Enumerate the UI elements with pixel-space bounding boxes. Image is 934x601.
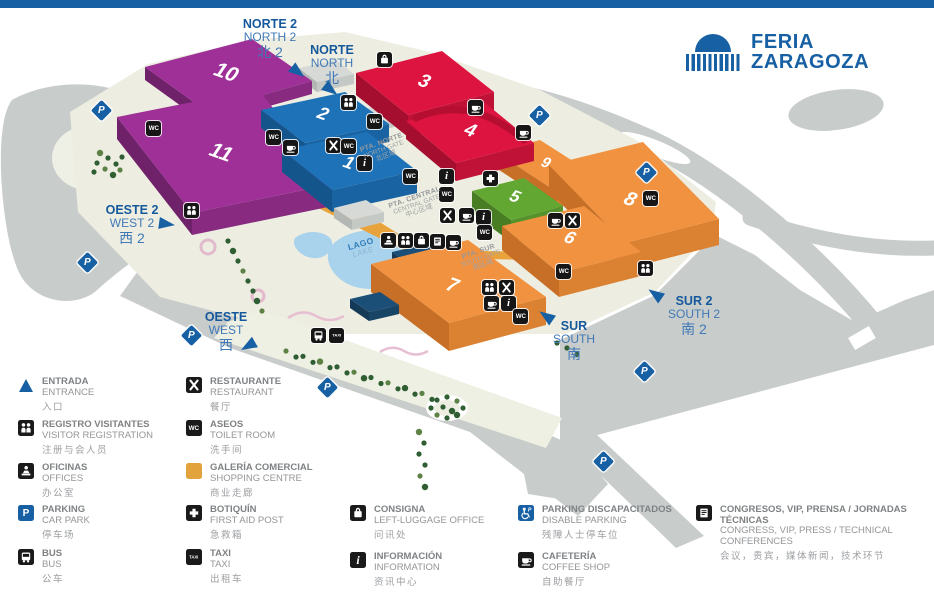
cong-icon <box>696 505 712 521</box>
legend-item-dis: PPARKING DISCAPACITADOSDISABLE PARKING残障… <box>518 505 717 541</box>
rest-icon <box>440 208 455 223</box>
direction-norte: NORTENORTH北 <box>310 44 354 87</box>
tree <box>419 391 424 396</box>
rest-icon <box>565 213 580 228</box>
logo-line2: ZARAGOZA <box>751 52 869 72</box>
legend-zh: 问讯处 <box>374 530 534 541</box>
legend-es: PARKING <box>42 505 172 516</box>
direction-zh: 西 2 <box>106 230 159 247</box>
legend-zh: 办公室 <box>42 488 172 499</box>
dome-shape <box>695 34 731 52</box>
legend-es: INFORMACIÓN <box>374 552 534 563</box>
legend-text: BUSBUS公车 <box>42 549 172 585</box>
legend-es: TAXI <box>210 549 350 560</box>
legend-en: CAR PARK <box>42 516 172 527</box>
info-icon: i <box>350 552 366 568</box>
legend-es: CONGRESOS, VIP, PRENSA / JORNADAS TÉCNIC… <box>720 505 930 526</box>
tree <box>444 415 449 420</box>
legend-text: REGISTRO VISITANTESVISITOR REGISTRATION注… <box>42 420 172 456</box>
tree <box>454 398 459 403</box>
legend-en: LEFT-LUGGAGE OFFICE <box>374 516 534 527</box>
logo: FERIA ZARAGOZA <box>686 32 869 72</box>
direction-en: NORTH 2 <box>243 31 297 44</box>
info-icon: i <box>439 169 454 184</box>
road-blob-topright <box>786 84 887 137</box>
legend-es: BOTIQUÍN <box>210 505 350 516</box>
tree <box>225 238 230 243</box>
legend-zh: 洗手间 <box>210 445 350 456</box>
tree <box>351 370 356 375</box>
legend-text: TAXITAXI出租车 <box>210 549 350 585</box>
taxi-icon: TAXI <box>186 549 202 565</box>
tree <box>105 155 110 160</box>
ofi-icon <box>18 463 34 479</box>
reg-icon <box>184 203 199 218</box>
tree <box>422 484 428 490</box>
legend-text: ASEOSTOILET ROOM洗手间 <box>210 420 350 456</box>
tree <box>327 365 332 370</box>
direction-norte2: NORTE 2NORTH 2北 2 <box>243 18 297 61</box>
legend-zh: 入口 <box>42 402 172 413</box>
wc-icon: WC <box>513 309 528 324</box>
legend-en: TOILET ROOM <box>210 431 350 442</box>
legend-text: ENTRADAENTRANCE入口 <box>42 377 172 413</box>
tree <box>235 258 240 263</box>
legend-item-reg: REGISTRO VISITANTESVISITOR REGISTRATION注… <box>18 420 172 456</box>
direction-en: WEST <box>205 324 247 337</box>
tree <box>254 298 260 304</box>
direction-zh: 南 <box>553 346 595 363</box>
coffee-icon <box>446 235 461 250</box>
tree <box>385 380 390 385</box>
ofi-icon <box>381 233 396 248</box>
bus-icon <box>18 549 34 565</box>
legend-zh: 商业走廊 <box>210 488 350 499</box>
tree <box>429 397 434 402</box>
legend-text: GALERÍA COMERCIALSHOPPING CENTRE商业走廊 <box>210 463 350 499</box>
legend-item-info: iINFORMACIÓNINFORMATION资讯中心 <box>350 552 534 588</box>
legend-zh: 残障人士停车位 <box>542 530 717 541</box>
reg-icon <box>482 280 497 295</box>
legend-en: CONGRESS, VIP, PRESS / TECHNICAL CONFERE… <box>720 526 930 547</box>
legend-item-taxi: TAXITAXITAXI出租车 <box>186 549 350 585</box>
legend-es: BUS <box>42 549 172 560</box>
tree <box>317 358 323 364</box>
legend-zh: 餐厅 <box>210 402 350 413</box>
direction-oeste2: OESTE 2WEST 2西 2 <box>106 204 159 247</box>
tree <box>94 160 99 165</box>
legend-item-aid: BOTIQUÍNFIRST AID POST急救箱 <box>186 505 350 541</box>
legend-item-coffee: CAFETERÍACOFFEE SHOP自助餐厅 <box>518 552 717 588</box>
legend-en: RESTAURANT <box>210 388 350 399</box>
legend-zh: 急救箱 <box>210 530 350 541</box>
wc-icon: WC <box>186 420 202 436</box>
wc-icon: WC <box>266 130 281 145</box>
info-icon: i <box>476 210 491 225</box>
wc-icon: WC <box>403 169 418 184</box>
legend-text: PARKING DISCAPACITADOSDISABLE PARKING残障人… <box>542 505 717 541</box>
legend-es: OFICINAS <box>42 463 172 474</box>
direction-en: NORTH <box>310 57 354 70</box>
legend-text: BOTIQUÍNFIRST AID POST急救箱 <box>210 505 350 541</box>
reg-icon <box>398 233 413 248</box>
legend-item-shop: GALERÍA COMERCIALSHOPPING CENTRE商业走廊 <box>186 463 350 499</box>
bag-icon <box>350 505 366 521</box>
direction-en: SOUTH 2 <box>668 308 720 321</box>
tree <box>402 385 408 391</box>
tree <box>460 405 465 410</box>
tree <box>91 169 96 174</box>
parking-letter: P <box>98 105 105 116</box>
tree <box>422 462 427 467</box>
legend-text: CONSIGNALEFT-LUGGAGE OFFICE问讯处 <box>374 505 534 541</box>
legend-zh: 注册与会人员 <box>42 445 172 456</box>
tree <box>310 360 315 365</box>
legend-item-bus: BUSBUS公车 <box>18 549 172 585</box>
tree <box>440 404 445 409</box>
tree <box>250 288 255 293</box>
rest-icon <box>326 138 341 153</box>
cong-icon <box>430 234 445 249</box>
legend-item-cong: CONGRESOS, VIP, PRENSA / JORNADAS TÉCNIC… <box>696 505 930 562</box>
tree <box>102 166 107 171</box>
tree <box>119 154 124 159</box>
tree <box>110 172 116 178</box>
legend-item-wc: WCASEOSTOILET ROOM洗手间 <box>186 420 350 456</box>
wc-icon: WC <box>341 139 356 154</box>
legend-es: PARKING DISCAPACITADOS <box>542 505 717 516</box>
aid-icon <box>483 171 498 186</box>
coffee-icon <box>459 208 474 223</box>
reg-icon <box>18 420 34 436</box>
legend-en: OFFICES <box>42 474 172 485</box>
feria-zaragoza-venue-map: 1011213948567WCWCWCWCiWCiWCiWCiWCWCWCTAX… <box>0 0 934 601</box>
dis-icon: P <box>518 505 534 521</box>
legend-zh: 资讯中心 <box>374 577 534 588</box>
coffee-icon <box>283 140 298 155</box>
reg-icon <box>638 261 653 276</box>
tree <box>434 397 439 402</box>
tree <box>293 354 298 359</box>
shop-icon <box>186 463 202 479</box>
tree <box>245 278 250 283</box>
legend-zh: 停车场 <box>42 530 172 541</box>
tree <box>334 364 339 369</box>
direction-sur: SURSOUTH南 <box>553 320 595 363</box>
tree <box>368 375 373 380</box>
entrance-triangle-icon <box>19 379 33 392</box>
wc-icon: WC <box>643 191 658 206</box>
reg-icon <box>341 95 356 110</box>
rest-icon <box>499 280 514 295</box>
parking-letter: P <box>84 257 91 268</box>
parking-letter: P <box>600 456 607 467</box>
legend-es: CONSIGNA <box>374 505 534 516</box>
bag-icon <box>414 233 429 248</box>
wc-icon: WC <box>146 121 161 136</box>
tree <box>283 348 288 353</box>
tree <box>378 381 383 386</box>
tree <box>416 451 421 456</box>
wc-icon: WC <box>556 264 571 279</box>
logo-text: FERIA ZARAGOZA <box>751 32 869 72</box>
direction-zh: 北 2 <box>243 44 297 61</box>
legend-es: ENTRADA <box>42 377 172 388</box>
garden-path-2 <box>380 348 428 355</box>
legend-zh: 自助餐厅 <box>542 577 717 588</box>
legend-es: CAFETERÍA <box>542 552 717 563</box>
logo-line1: FERIA <box>751 32 869 52</box>
legend-es: ASEOS <box>210 420 350 431</box>
direction-arrow-oeste2 <box>158 217 176 231</box>
tree <box>300 354 305 359</box>
parking-letter: P <box>536 110 543 121</box>
wc-icon: WC <box>477 225 492 240</box>
wc-icon: WC <box>367 114 382 129</box>
tree <box>428 405 433 410</box>
tree <box>416 429 422 435</box>
legend-zh: 公车 <box>42 574 172 585</box>
rest-icon <box>186 377 202 393</box>
tree <box>97 150 103 156</box>
legend-en: COFFEE SHOP <box>542 563 717 574</box>
legend-en: VISITOR REGISTRATION <box>42 431 172 442</box>
coffee-icon <box>468 100 483 115</box>
tree <box>434 412 439 417</box>
legend-es: REGISTRO VISITANTES <box>42 420 172 431</box>
tree <box>117 167 122 172</box>
legend-text: PARKINGCAR PARK停车场 <box>42 505 172 541</box>
legend-item-park: PPARKINGCAR PARK停车场 <box>18 505 172 541</box>
direction-sur2: SUR 2SOUTH 2南 2 <box>668 295 720 338</box>
park-icon: P <box>18 505 34 521</box>
tree <box>454 412 460 418</box>
legend-text: OFICINASOFFICES办公室 <box>42 463 172 499</box>
tree <box>417 473 422 478</box>
legend-text: CAFETERÍACOFFEE SHOP自助餐厅 <box>542 552 717 588</box>
aid-icon <box>186 505 202 521</box>
parking-letter: P <box>188 330 195 341</box>
bag-icon <box>377 52 392 67</box>
tree <box>361 375 367 381</box>
tree <box>421 440 426 445</box>
direction-zh: 南 2 <box>668 321 720 338</box>
direction-en: WEST 2 <box>106 217 159 230</box>
legend-text: RESTAURANTERESTAURANT餐厅 <box>210 377 350 413</box>
tree <box>444 394 449 399</box>
direction-en: SOUTH <box>553 333 595 346</box>
legend-text: INFORMACIÓNINFORMATION资讯中心 <box>374 552 534 588</box>
legend-es: GALERÍA COMERCIAL <box>210 463 350 474</box>
legend-item-ofi: OFICINASOFFICES办公室 <box>18 463 172 499</box>
tree <box>113 161 118 166</box>
legend-en: FIRST AID POST <box>210 516 350 527</box>
legend-text: CONGRESOS, VIP, PRENSA / JORNADAS TÉCNIC… <box>720 505 930 562</box>
legend-en: ENTRANCE <box>42 388 172 399</box>
legend-zh: 会议，贵宾，媒体新闻，技术环节 <box>720 551 930 562</box>
tree <box>259 308 264 313</box>
legend-item-entrance: ENTRADAENTRANCE入口 <box>18 377 172 413</box>
legend-es: RESTAURANTE <box>210 377 350 388</box>
tree <box>344 370 349 375</box>
coffee-icon <box>516 125 531 140</box>
parking-letter: P <box>641 366 648 377</box>
legend-item-rest: RESTAURANTERESTAURANT餐厅 <box>186 377 350 413</box>
legend-en: BUS <box>42 560 172 571</box>
svg-text:P: P <box>528 507 532 513</box>
tree <box>240 268 245 273</box>
bus-icon <box>311 328 326 343</box>
coffee-icon <box>518 552 534 568</box>
legend-item-bag: CONSIGNALEFT-LUGGAGE OFFICE问讯处 <box>350 505 534 541</box>
legend-zh: 出租车 <box>210 574 350 585</box>
logo-dome-icon <box>686 32 742 71</box>
legend-en: DISABLE PARKING <box>542 516 717 527</box>
legend-en: TAXI <box>210 560 350 571</box>
entrance-icon <box>18 377 34 393</box>
taxi-icon: TAXI <box>329 328 344 343</box>
bars-shape <box>686 54 741 71</box>
coffee-icon <box>484 296 499 311</box>
coffee-icon <box>548 213 563 228</box>
legend-en: SHOPPING CENTRE <box>210 474 350 485</box>
tree <box>412 392 417 397</box>
tree <box>230 248 236 254</box>
legend-en: INFORMATION <box>374 563 534 574</box>
tree <box>395 386 400 391</box>
parking-letter: P <box>643 167 650 178</box>
tree <box>449 408 455 414</box>
